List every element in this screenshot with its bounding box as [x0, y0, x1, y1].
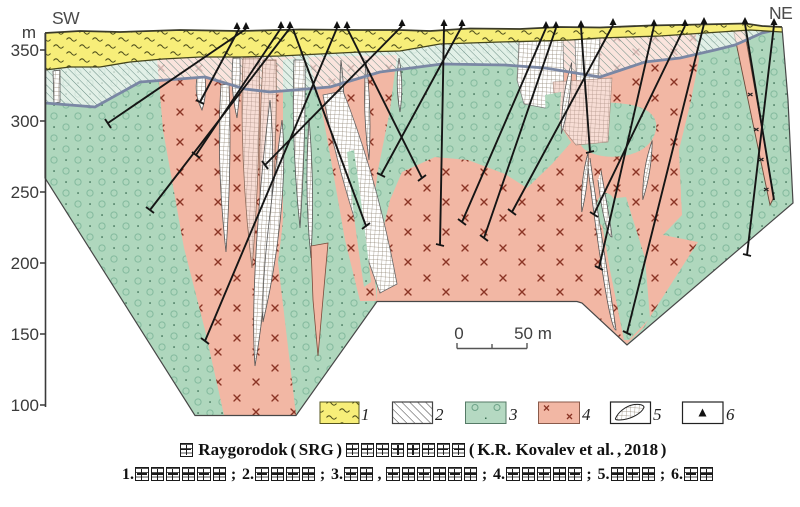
svg-text:NE: NE [769, 3, 792, 23]
svg-text:m: m [22, 23, 36, 42]
svg-text:3: 3 [508, 405, 518, 424]
svg-text:0: 0 [454, 324, 463, 343]
svg-text:100: 100 [11, 396, 39, 415]
svg-text:1: 1 [361, 405, 370, 424]
svg-text:2: 2 [435, 405, 444, 424]
svg-text:150: 150 [11, 325, 39, 344]
svg-text:300: 300 [11, 112, 39, 131]
svg-text:4: 4 [582, 405, 591, 424]
svg-text:5: 5 [653, 405, 662, 424]
svg-text:250: 250 [11, 183, 39, 202]
svg-text:SW: SW [52, 8, 80, 28]
svg-text:6: 6 [726, 405, 735, 424]
svg-text:350: 350 [11, 41, 39, 60]
svg-text:50 m: 50 m [514, 324, 552, 343]
svg-text:200: 200 [11, 254, 39, 273]
